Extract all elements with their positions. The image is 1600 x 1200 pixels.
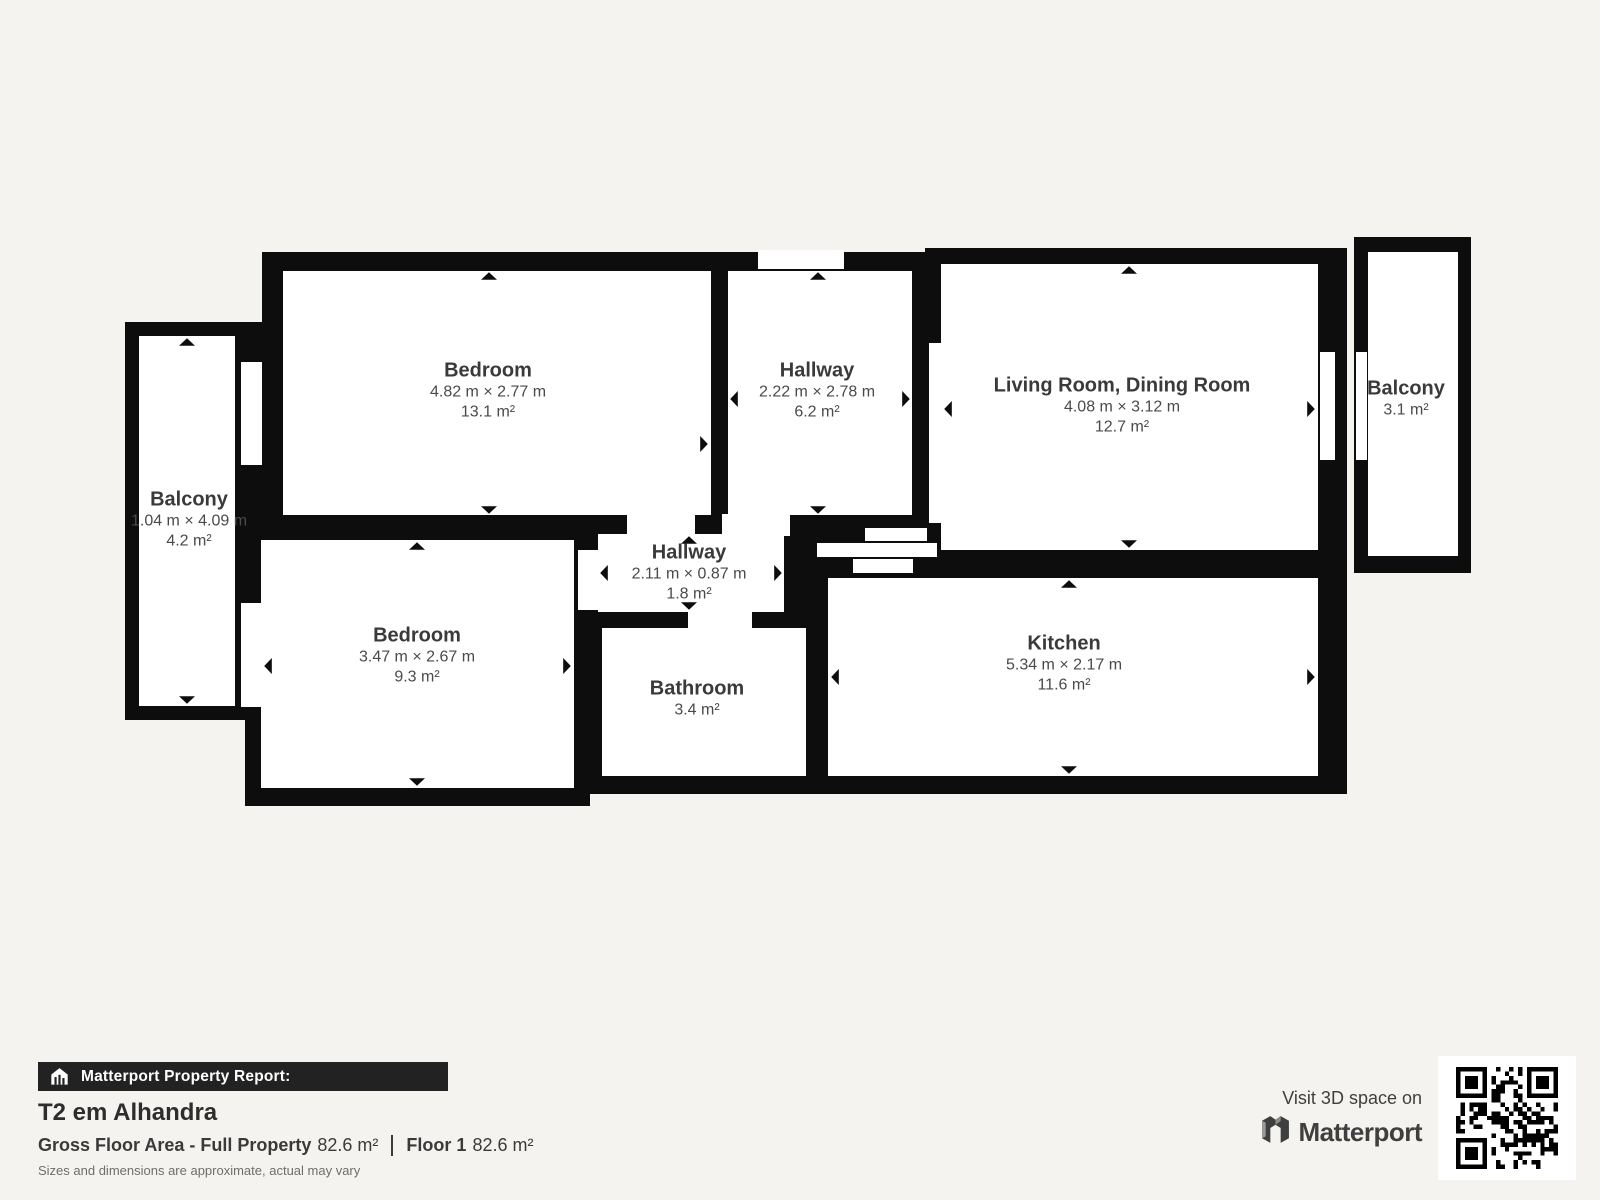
room-dimensions: 1.04 m × 4.09 m (131, 512, 247, 532)
matterport-m-icon (1262, 1114, 1289, 1150)
room-area: 9.3 m² (359, 668, 475, 688)
floor-plan-report: Bedroom 4.82 m × 2.77 m 13.1 m² Hallway … (0, 0, 1600, 1200)
room-area: 3.1 m² (1367, 401, 1445, 421)
room-area: 12.7 m² (994, 418, 1251, 438)
report-header-bar: Matterport Property Report: (38, 1062, 448, 1091)
floor-value: 82.6 m² (472, 1135, 533, 1156)
room-area: 4.2 m² (131, 532, 247, 552)
room-label-bedroom-1: Bedroom 4.82 m × 2.77 m 13.1 m² (430, 360, 546, 423)
floor-area-line: Gross Floor Area - Full Property 82.6 m²… (38, 1135, 533, 1156)
room-name: Hallway (759, 360, 875, 383)
report-header-label: Matterport Property Report: (81, 1068, 291, 1086)
room-label-bedroom-2: Bedroom 3.47 m × 2.67 m 9.3 m² (359, 625, 475, 688)
matterport-brand: Matterport (1262, 1114, 1422, 1150)
room-dimensions: 5.34 m × 2.17 m (1006, 656, 1122, 676)
property-title: T2 em Alhandra (38, 1099, 217, 1127)
room-name: Balcony (1367, 378, 1445, 401)
room-area: 3.4 m² (650, 701, 744, 721)
room-dimensions: 3.47 m × 2.67 m (359, 648, 475, 668)
room-dimensions: 2.11 m × 0.87 m (632, 565, 747, 585)
room-label-hallway-2: Hallway 2.11 m × 0.87 m 1.8 m² (632, 542, 747, 605)
floor-plan (0, 0, 1600, 1200)
room-label-kitchen: Kitchen 5.34 m × 2.17 m 11.6 m² (1006, 633, 1122, 696)
cta-block: Visit 3D space on Matterport (1190, 1086, 1422, 1150)
room-label-balcony-left: Balcony 1.04 m × 4.09 m 4.2 m² (131, 489, 247, 552)
room-label-living-dining: Living Room, Dining Room 4.08 m × 3.12 m… (994, 375, 1251, 438)
room-area: 1.8 m² (632, 585, 747, 605)
room-dimensions: 4.08 m × 3.12 m (994, 398, 1251, 418)
room-label-hallway-1: Hallway 2.22 m × 2.78 m 6.2 m² (759, 360, 875, 423)
room-name: Hallway (632, 542, 747, 565)
room-name: Living Room, Dining Room (994, 375, 1251, 398)
room-label-bathroom: Bathroom 3.4 m² (650, 678, 744, 721)
gross-floor-area-value: 82.6 m² (317, 1135, 378, 1156)
room-name: Balcony (131, 489, 247, 512)
qr-code (1438, 1056, 1576, 1180)
room-area: 6.2 m² (759, 403, 875, 423)
room-area: 13.1 m² (430, 403, 546, 423)
room-area: 11.6 m² (1006, 676, 1122, 696)
house-bars-icon (50, 1067, 69, 1086)
floor-label: Floor 1 (406, 1135, 466, 1156)
disclaimer-text: Sizes and dimensions are approximate, ac… (38, 1163, 360, 1178)
gross-floor-area-label: Gross Floor Area - Full Property (38, 1135, 311, 1156)
room-name: Bedroom (430, 360, 546, 383)
room-dimensions: 4.82 m × 2.77 m (430, 383, 546, 403)
matterport-wordmark: Matterport (1298, 1117, 1422, 1148)
room-name: Bathroom (650, 678, 744, 701)
room-name: Kitchen (1006, 633, 1122, 656)
room-label-balcony-right: Balcony 3.1 m² (1367, 378, 1445, 421)
room-dimensions: 2.22 m × 2.78 m (759, 383, 875, 403)
cta-text: Visit 3D space on (1282, 1086, 1422, 1110)
room-name: Bedroom (359, 625, 475, 648)
separator (391, 1135, 393, 1156)
